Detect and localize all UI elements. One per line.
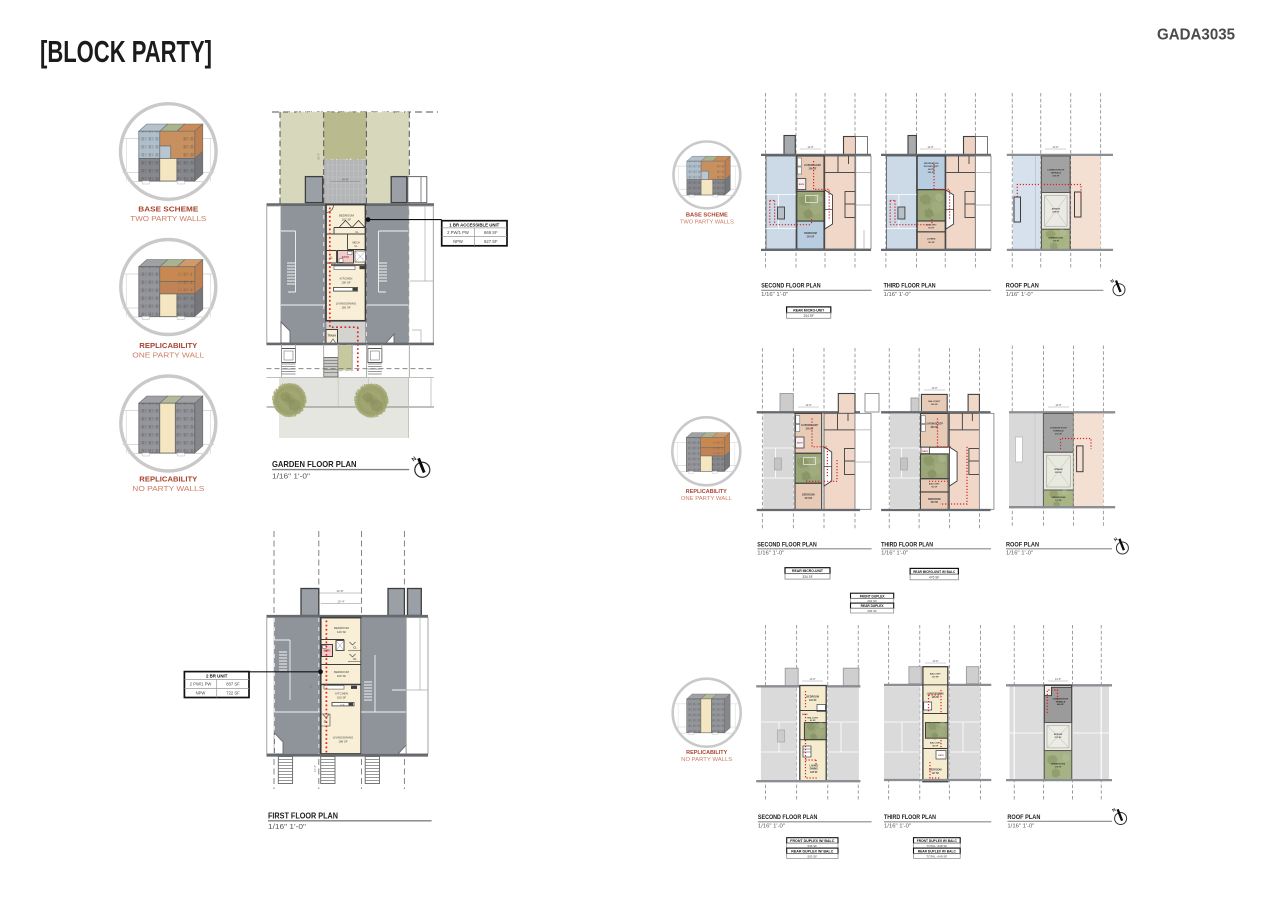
svg-text:1/16" 1'-0": 1/16" 1'-0" [1006, 551, 1033, 557]
svg-text:BASE SCHEME: BASE SCHEME [138, 207, 198, 214]
svg-text:BALC/UNIT: BALC/UNIT [928, 400, 940, 403]
svg-text:90 SF: 90 SF [931, 486, 937, 488]
svg-text:90 SF: 90 SF [928, 228, 934, 230]
svg-text:TERRACE: TERRACE [1051, 172, 1062, 175]
svg-text:BATH: BATH [797, 441, 803, 444]
svg-text:1/16" 1'-0": 1/16" 1'-0" [757, 551, 784, 557]
svg-text:627 SF: 627 SF [484, 239, 498, 244]
svg-text:1/16" 1'-0": 1/16" 1'-0" [1007, 823, 1034, 829]
svg-text:NPW: NPW [453, 239, 463, 244]
svg-text:128 SF: 128 SF [810, 771, 818, 774]
svg-text:1/16" 1'-0": 1/16" 1'-0" [881, 551, 908, 557]
svg-text:140 SF: 140 SF [931, 403, 939, 406]
svg-text:TOTAL: 638 SF: TOTAL: 638 SF [926, 844, 947, 848]
svg-text:14'-8": 14'-8" [931, 387, 937, 390]
svg-text:SECOND FLOOR PLAN: SECOND FLOOR PLAN [757, 542, 817, 548]
svg-text:CL: CL [353, 647, 357, 650]
svg-text:TWO PARTY WALLS: TWO PARTY WALLS [680, 220, 735, 226]
svg-text:ROOF PLAN: ROOF PLAN [1006, 542, 1039, 548]
svg-text:CL: CL [355, 230, 359, 234]
svg-text:COMMON ROOF: COMMON ROOF [1053, 699, 1069, 701]
svg-text:REPLICABILITY: REPLICABILITY [686, 489, 728, 495]
svg-text:REPLICABILITY: REPLICABILITY [139, 477, 197, 484]
svg-text:40 SF: 40 SF [810, 719, 816, 722]
svg-text:ONE PARTY WALL: ONE PARTY WALL [681, 496, 732, 502]
svg-text:2 PW/1 PW: 2 PW/1 PW [447, 230, 469, 235]
svg-text:BALCONY: BALCONY [926, 224, 937, 227]
svg-text:BATH: BATH [922, 450, 928, 453]
svg-text:722 SF: 722 SF [226, 691, 240, 696]
svg-text:LIV/BED: LIV/BED [927, 239, 936, 241]
svg-text:COMMON ROOF: COMMON ROOF [1050, 428, 1068, 430]
svg-text:1/16" 1'-0": 1/16" 1'-0" [761, 292, 788, 298]
svg-text:545 SF: 545 SF [807, 844, 817, 848]
svg-text:40 SF: 40 SF [932, 745, 938, 748]
svg-text:299 SF: 299 SF [1055, 472, 1063, 474]
svg-text:178 SF: 178 SF [1053, 241, 1060, 243]
svg-text:100 SF: 100 SF [341, 281, 351, 285]
svg-text:12'-6": 12'-6" [313, 765, 317, 772]
svg-text:178 SF: 178 SF [1055, 500, 1062, 502]
svg-text:TOTAL: 649 SF: TOTAL: 649 SF [926, 854, 947, 858]
svg-text:2 PW/1 PW: 2 PW/1 PW [190, 682, 212, 687]
svg-text:14'-8": 14'-8" [1052, 146, 1058, 149]
svg-text:14'-8": 14'-8" [1055, 404, 1061, 407]
svg-text:293 SF: 293 SF [867, 599, 877, 603]
svg-text:CL: CL [353, 658, 357, 661]
svg-text:REPLICABILITY: REPLICABILITY [686, 750, 728, 756]
svg-text:BALCONY: BALCONY [930, 742, 941, 745]
svg-text:296 SF: 296 SF [867, 609, 877, 613]
svg-text:THIRD FLOOR PLAN: THIRD FLOOR PLAN [881, 542, 933, 548]
svg-text:TRASH: TRASH [328, 335, 337, 338]
svg-text:NPW: NPW [196, 691, 206, 696]
svg-text:14'-8": 14'-8" [807, 146, 813, 149]
svg-text:FRONT DUPLEX W/ BALC: FRONT DUPLEX W/ BALC [917, 839, 958, 843]
svg-text:REAR MICRO-UNIT: REAR MICRO-UNIT [792, 569, 824, 573]
svg-text:299 SF: 299 SF [1052, 212, 1060, 214]
svg-text:1 BR ACCESSIBLE UNIT: 1 BR ACCESSIBLE UNIT [449, 222, 499, 227]
svg-text:TERRACE: TERRACE [1056, 700, 1066, 703]
svg-text:SECOND FLOOR PLAN: SECOND FLOOR PLAN [758, 815, 818, 821]
svg-text:14'-8": 14'-8" [932, 660, 938, 663]
svg-text:2 BR UNIT: 2 BR UNIT [206, 674, 228, 679]
svg-text:1/16" 1'-0": 1/16" 1'-0" [272, 471, 310, 480]
svg-text:THIRD FLOOR PLAN: THIRD FLOOR PLAN [884, 284, 936, 290]
svg-text:166 SF: 166 SF [341, 306, 351, 310]
svg-text:32'-0": 32'-0" [317, 153, 321, 160]
svg-text:1/16" 1'-0": 1/16" 1'-0" [884, 823, 911, 829]
svg-text:36': 36' [309, 684, 313, 688]
svg-text:REAR DUPLEX: REAR DUPLEX [861, 604, 885, 608]
svg-text:GREENHOUSE: GREENHOUSE [1051, 764, 1066, 766]
svg-text:14'-8": 14'-8" [336, 589, 343, 593]
svg-text:ATRIUM: ATRIUM [1054, 468, 1063, 471]
svg-text:14'-8": 14'-8" [341, 178, 348, 182]
svg-text:BATH: BATH [938, 754, 944, 757]
svg-text:100 SF: 100 SF [337, 696, 347, 700]
svg-text:1/16" 1'-0": 1/16" 1'-0" [884, 292, 911, 298]
svg-text:198 SF: 198 SF [338, 740, 348, 744]
svg-text:ATRIUM: ATRIUM [1054, 733, 1063, 736]
svg-text:GADA3035: GADA3035 [1157, 27, 1235, 44]
svg-text:100 SF: 100 SF [928, 242, 936, 244]
svg-text:272 SF: 272 SF [1055, 766, 1062, 768]
svg-text:14'-8": 14'-8" [805, 404, 811, 407]
svg-text:BALCONY: BALCONY [930, 673, 941, 676]
svg-text:FRONT DUPLEX: FRONT DUPLEX [860, 594, 886, 598]
svg-text:ATRIUM: ATRIUM [1052, 208, 1061, 211]
svg-text:ROOF PLAN: ROOF PLAN [1007, 815, 1040, 821]
svg-text:BATH: BATH [799, 183, 805, 186]
svg-text:503 SF: 503 SF [807, 854, 817, 858]
svg-text:271 SF: 271 SF [1054, 737, 1062, 739]
svg-text:REPLICABILITY: REPLICABILITY [139, 343, 197, 350]
svg-text:204 SF: 204 SF [807, 235, 815, 238]
svg-text:ROOM/GUEST: ROOM/GUEST [924, 166, 940, 168]
svg-text:204 SF: 204 SF [805, 497, 813, 500]
svg-text:ROOF PLAN: ROOF PLAN [1006, 284, 1039, 290]
svg-text:110 SF: 110 SF [932, 677, 940, 679]
svg-text:ONE PARTY WALL: ONE PARTY WALL [132, 351, 204, 360]
svg-text:GREENHOUSE: GREENHOUSE [1049, 238, 1064, 240]
svg-text:TERRACE: TERRACE [1053, 430, 1064, 433]
svg-text:14'-8": 14'-8" [927, 146, 933, 149]
svg-text:FRONT DUPLEX W/ BALC: FRONT DUPLEX W/ BALC [790, 839, 835, 843]
svg-text:149 SF: 149 SF [337, 630, 347, 634]
svg-text:14'-8": 14'-8" [1055, 678, 1061, 681]
svg-text:669 SF: 669 SF [484, 230, 498, 235]
svg-text:209 SF: 209 SF [809, 167, 817, 170]
svg-text:BALCONY: BALCONY [807, 716, 818, 719]
svg-text:167 SF: 167 SF [342, 218, 352, 222]
svg-text:[BLOCK PARTY]: [BLOCK PARTY] [40, 34, 212, 69]
svg-text:FIRST FLOOR PLAN: FIRST FLOOR PLAN [268, 811, 338, 821]
svg-text:100 SF: 100 SF [930, 501, 938, 504]
svg-text:14'-8": 14'-8" [809, 678, 815, 681]
svg-text:1/16" 1'-0": 1/16" 1'-0" [268, 822, 306, 831]
svg-text:BALCONY: BALCONY [929, 482, 940, 485]
svg-text:334 SF: 334 SF [802, 575, 812, 579]
svg-text:128 SF: 128 SF [931, 696, 939, 699]
svg-text:1/16" 1'-0": 1/16" 1'-0" [758, 823, 785, 829]
svg-text:330 SF: 330 SF [1055, 434, 1063, 436]
svg-text:REAR DUPLEX W/ BALC: REAR DUPLEX W/ BALC [791, 849, 834, 853]
svg-text:13'-4": 13'-4" [337, 599, 344, 603]
svg-text:209 SF: 209 SF [806, 427, 814, 430]
svg-text:204 SF: 204 SF [804, 314, 814, 318]
svg-text:GREENHOUSE: GREENHOUSE [1051, 497, 1066, 499]
svg-text:476 SF: 476 SF [929, 576, 939, 580]
svg-text:F+S: F+S [341, 704, 345, 706]
svg-text:THIRD FLOOR PLAN: THIRD FLOOR PLAN [884, 815, 936, 821]
svg-text:BASE SCHEME: BASE SCHEME [686, 213, 729, 219]
svg-text:807 SF: 807 SF [226, 682, 240, 687]
svg-text:REAR MICRO-UNIT W/ BALC: REAR MICRO-UNIT W/ BALC [913, 570, 955, 574]
svg-text:116 SF: 116 SF [809, 699, 817, 702]
svg-text:REAR MICRO-UNIT: REAR MICRO-UNIT [793, 308, 825, 312]
svg-text:SECOND FLOOR PLAN: SECOND FLOOR PLAN [761, 284, 821, 290]
svg-text:NO PARTY WALLS: NO PARTY WALLS [681, 757, 733, 763]
svg-text:100 SF: 100 SF [337, 674, 347, 678]
svg-text:TWO PARTY WALLS: TWO PARTY WALLS [130, 214, 206, 223]
svg-text:1/16" 1'-0": 1/16" 1'-0" [1006, 292, 1033, 298]
svg-text:REAR DUPLEX W/ BALC: REAR DUPLEX W/ BALC [918, 849, 957, 853]
svg-text:449 SF: 449 SF [1057, 703, 1064, 706]
svg-text:RECREATION: RECREATION [924, 162, 939, 165]
svg-text:COMMON ROOF: COMMON ROOF [1047, 170, 1065, 172]
svg-text:GARDEN FLOOR PLAN: GARDEN FLOOR PLAN [272, 459, 357, 469]
svg-text:NO PARTY WALLS: NO PARTY WALLS [132, 484, 204, 493]
svg-text:117 SF: 117 SF [932, 772, 940, 775]
svg-text:330 SF: 330 SF [1052, 176, 1060, 178]
